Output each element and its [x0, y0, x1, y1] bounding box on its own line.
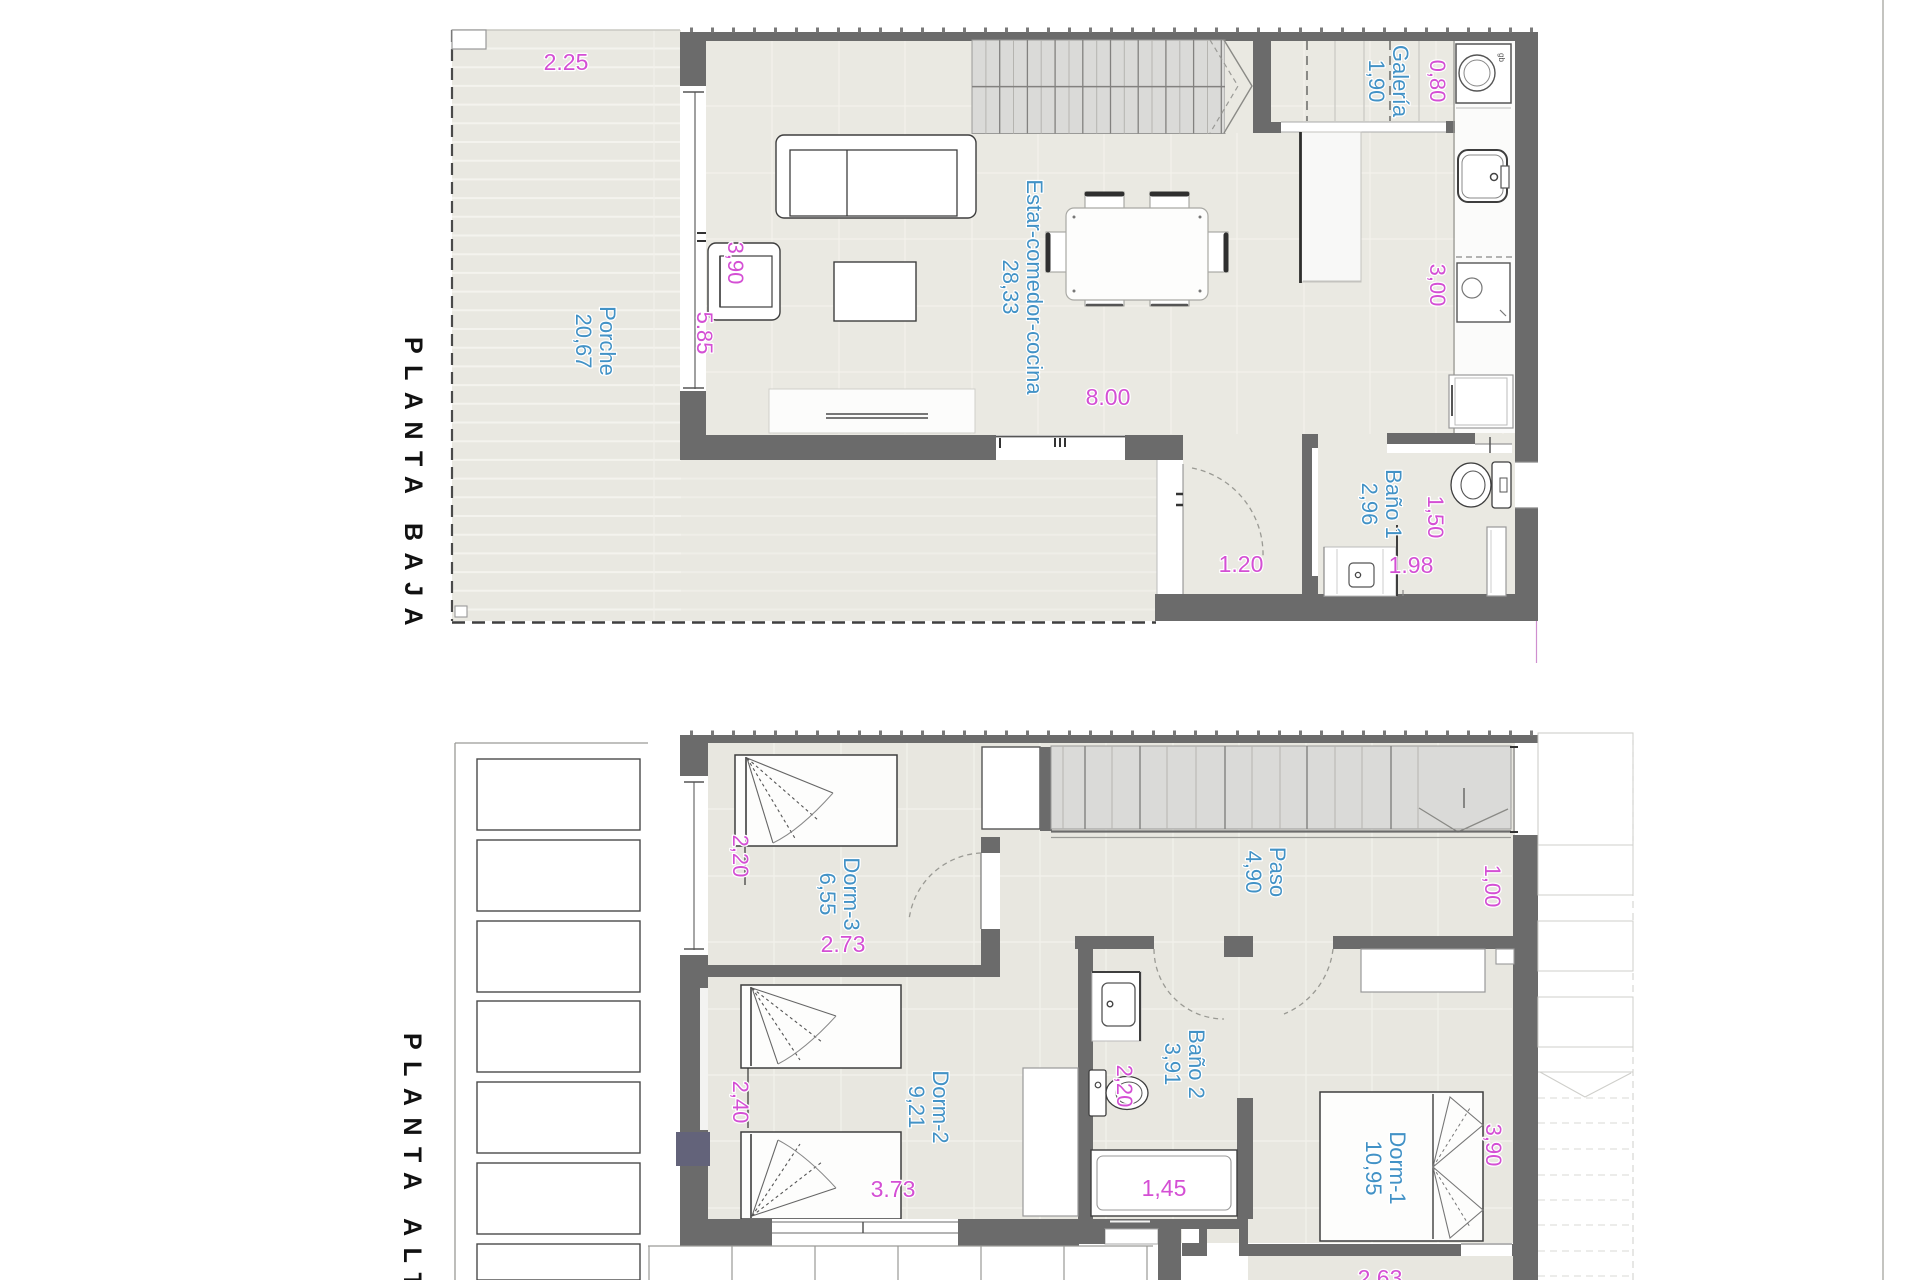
svg-text:3.73: 3.73 [871, 1176, 916, 1202]
svg-text:1,00: 1,00 [1480, 865, 1505, 908]
svg-text:1.20: 1.20 [1219, 551, 1264, 577]
svg-text:PLANTA ALTA: PLANTA ALTA [398, 1033, 426, 1280]
svg-text:8.00: 8.00 [1086, 384, 1131, 410]
svg-text:3,90: 3,90 [1481, 1124, 1506, 1167]
svg-text:Baño 1: Baño 1 [1381, 469, 1406, 539]
svg-text:5.85: 5.85 [692, 312, 717, 355]
svg-text:Paso: Paso [1265, 847, 1290, 897]
svg-text:Porche: Porche [595, 306, 620, 376]
svg-text:3,00: 3,00 [1425, 264, 1450, 307]
svg-text:9,21: 9,21 [904, 1086, 929, 1129]
svg-text:20,67: 20,67 [571, 313, 596, 368]
svg-text:Dorm-3: Dorm-3 [839, 857, 864, 930]
svg-text:2,20: 2,20 [728, 835, 753, 878]
svg-text:2.73: 2.73 [821, 931, 866, 957]
svg-text:0,80: 0,80 [1425, 60, 1450, 103]
svg-text:1,45: 1,45 [1142, 1175, 1187, 1201]
svg-text:2,40: 2,40 [728, 1081, 753, 1124]
svg-text:28,33: 28,33 [998, 259, 1023, 314]
svg-text:2,96: 2,96 [1357, 483, 1382, 526]
svg-text:1,50: 1,50 [1423, 496, 1448, 539]
svg-text:6,55: 6,55 [815, 873, 840, 916]
svg-text:Dorm-1: Dorm-1 [1385, 1131, 1410, 1204]
svg-text:3,90: 3,90 [723, 242, 748, 285]
svg-text:10,95: 10,95 [1361, 1140, 1386, 1195]
svg-text:Estar-comedor-cocina: Estar-comedor-cocina [1022, 179, 1047, 395]
svg-text:2.25: 2.25 [544, 49, 589, 75]
svg-text:Baño 2: Baño 2 [1184, 1029, 1209, 1099]
svg-text:2,20: 2,20 [1112, 1065, 1137, 1108]
svg-text:3,91: 3,91 [1160, 1043, 1185, 1086]
svg-text:gb: gb [1497, 53, 1506, 62]
svg-text:4,90: 4,90 [1241, 851, 1266, 894]
svg-text:Galería: Galería [1388, 45, 1413, 118]
svg-text:2.63: 2.63 [1358, 1265, 1403, 1280]
svg-text:Dorm-2: Dorm-2 [928, 1070, 953, 1143]
svg-text:1.98: 1.98 [1389, 552, 1434, 578]
svg-text:1,90: 1,90 [1364, 60, 1389, 103]
svg-text:PLANTA BAJA: PLANTA BAJA [399, 337, 427, 637]
